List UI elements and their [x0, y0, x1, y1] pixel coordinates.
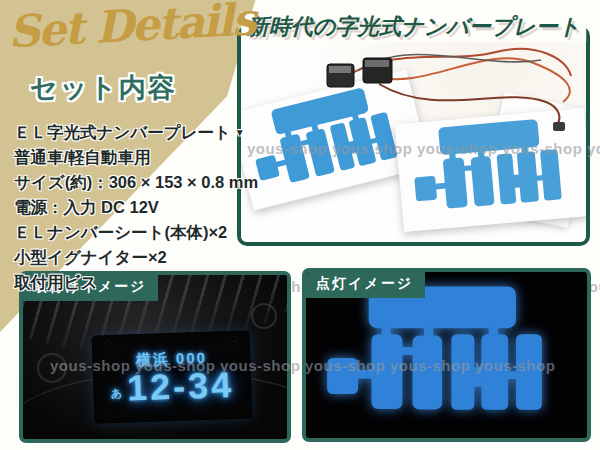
watermark-row: yous-shop yous-shop yous-shop yous-shop … [247, 140, 600, 157]
spec-line-product: ＥＬ字光式ナンバープレート▼ [14, 120, 244, 145]
wire-connector [553, 122, 565, 131]
plate-hiragana: あ [111, 385, 123, 400]
spec-line: 普通車/軽自動車用 [14, 145, 244, 170]
spec-line: 小型イグナイター×2 [14, 245, 244, 270]
car-detail-circle [251, 303, 277, 329]
lit-photo: 点灯イメージ [302, 268, 591, 442]
product-photo [241, 30, 586, 242]
watermark-row: yous-shop yous-shop yous-shop yous-shop … [50, 357, 555, 374]
lit-photo-label: 点灯イメージ [306, 272, 425, 298]
product-detail-image: Set Details セット内容 ＥＬ字光式ナンバープレート▼ 普通車/軽自動… [0, 0, 600, 450]
product-photo-frame: 新時代の字光式ナンバープレート [237, 26, 590, 246]
spec-line: サイズ(約)：306 × 153 × 0.8 mm [14, 170, 244, 195]
spec-line: 電源：入力 DC 12V [14, 195, 244, 220]
section-title: セット内容 [30, 70, 177, 106]
spec-line: ＥＬナンバーシート(本体)×2 [14, 220, 244, 245]
spec-line: 取付用ビス [14, 270, 244, 295]
spec-list: ＥＬ字光式ナンバープレート▼ 普通車/軽自動車用 サイズ(約)：306 × 15… [14, 120, 244, 295]
license-plate: 横浜 000 あ 12-34 [92, 330, 253, 423]
igniters-and-wires [241, 30, 586, 242]
plate-screw-icon [106, 341, 110, 345]
spec-product-name: ＥＬ字光式ナンバープレート [14, 123, 231, 141]
product-box-title: 新時代の字光式ナンバープレート [241, 12, 587, 42]
triangle-down-icon: ▼ [235, 127, 245, 138]
plate-screw-icon [232, 337, 236, 341]
